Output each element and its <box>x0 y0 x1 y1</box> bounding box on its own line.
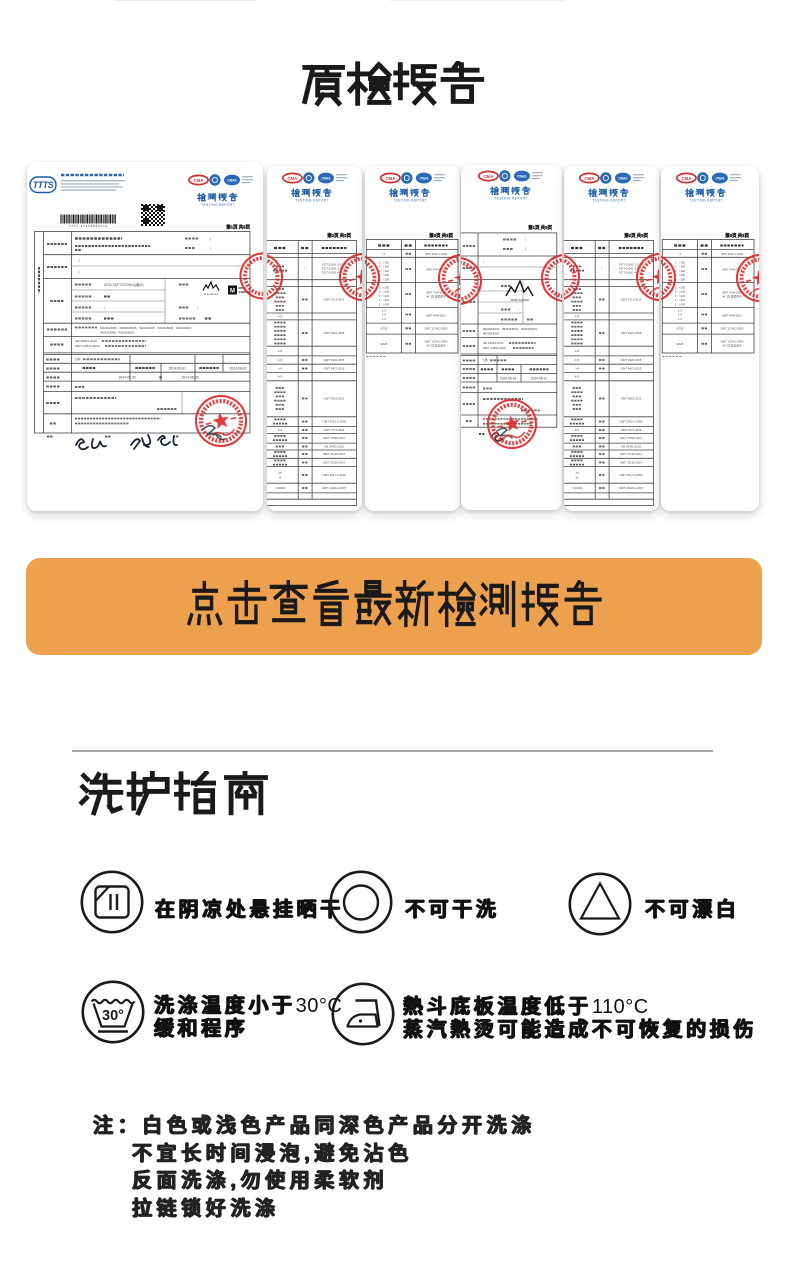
svg-text:GB/T 17592-2011: GB/T 17592-2011 <box>620 436 642 440</box>
svg-text:/: / <box>305 267 306 271</box>
svg-text:4K,3次,最高淋干: 4K,3次,最高淋干 <box>426 344 445 348</box>
svg-text:AY24-31(FT22C0001)(缠纱): AY24-31(FT22C0001)(缠纱) <box>104 282 144 287</box>
svg-text:/: / <box>525 248 526 252</box>
svg-text:6730: 6730 <box>677 327 684 331</box>
svg-text:30°: 30° <box>102 1008 124 1024</box>
svg-text:2：>100: 2：>100 <box>379 265 390 269</box>
svg-text:>10000: >10000 <box>572 486 583 490</box>
svg-text:1-5: 1-5 <box>678 309 682 313</box>
svg-text:GB/T 3922-2013: GB/T 3922-2013 <box>621 397 642 401</box>
svg-text:FZ/T 01001.4-2007: FZ/T 01001.4-2007 <box>322 271 346 275</box>
svg-text:GB/T 21196.2-2007: GB/T 21196.2-2007 <box>619 486 644 490</box>
svg-text:1件: 1件 <box>75 357 81 362</box>
svg-text:4-5: 4-5 <box>278 375 283 379</box>
svg-text:GB/T 31126-2014: GB/T 31126-2014 <box>323 461 345 465</box>
svg-text:GB/T 12794.2-2009: GB/T 12794.2-2009 <box>721 340 744 344</box>
svg-text:IM24618001、IM24018001、IM243180: IM24618001、IM24018001、IM24318001、 <box>483 327 540 331</box>
svg-text:3：>100: 3：>100 <box>675 269 686 273</box>
svg-text:GB/T 5713-2013: GB/T 5713-2013 <box>324 298 345 302</box>
svg-text:2024-05-21: 2024-05-21 <box>531 377 548 381</box>
svg-text:4-5: 4-5 <box>575 358 580 362</box>
svg-text:/: / <box>518 308 519 312</box>
svg-text:GB/T 3920-2008: GB/T 3920-2008 <box>621 358 642 362</box>
svg-text:3：>100: 3：>100 <box>379 269 390 273</box>
svg-text:GB/T 21196.2-2007: GB/T 21196.2-2007 <box>322 486 347 490</box>
svg-text:GB/T 3922-2013: GB/T 3922-2013 <box>324 397 345 401</box>
svg-text:MOBI GARDEN: MOBI GARDEN <box>511 298 530 302</box>
svg-text:GB/T 4802.1-2008: GB/T 4802.1-2008 <box>425 252 448 256</box>
svg-text:TESTING REPORT: TESTING REPORT <box>295 199 329 203</box>
svg-text:2：>100: 2：>100 <box>675 265 686 269</box>
svg-text:GB/T 4802.1-2008: GB/T 4802.1-2008 <box>721 252 744 256</box>
svg-text:11: 11 <box>575 475 578 479</box>
svg-text:/: / <box>525 238 526 242</box>
svg-text:TESTING REPORT: TESTING REPORT <box>689 199 723 203</box>
svg-text:第1页 共3页: 第1页 共3页 <box>226 224 250 231</box>
svg-text:CMA: CMA <box>681 176 692 181</box>
svg-text:第2页 共3页: 第2页 共3页 <box>327 232 351 239</box>
svg-text:CNAS: CNAS <box>419 177 428 181</box>
svg-text:4-5: 4-5 <box>278 358 283 362</box>
svg-text:2：>100: 2：>100 <box>675 290 686 294</box>
svg-text:4: 4 <box>383 252 385 256</box>
svg-text:FZ/T 01001.4-2007: FZ/T 01001.4-2007 <box>619 271 643 275</box>
svg-text:1：>100: 1：>100 <box>379 286 390 290</box>
svg-text:GB/T 22814-2022: GB/T 22814-2022 <box>75 344 100 348</box>
svg-text:7 7 7 6 - 9 7 2 6 4 9 6 3 1 1: 7 7 7 6 - 9 7 2 6 4 9 6 3 1 1 9 <box>69 224 108 228</box>
svg-text:4：>100: 4：>100 <box>675 298 686 302</box>
svg-text:GB/T 7573-2009: GB/T 7573-2009 <box>621 428 642 432</box>
svg-text:GB 18401-2010: GB 18401-2010 <box>621 445 641 449</box>
svg-text:IM24318002: IM24318002 <box>483 332 499 336</box>
svg-text:4K,3次,雾漬风干: 4K,3次,雾漬风干 <box>426 295 446 299</box>
svg-text:4：>100: 4：>100 <box>379 298 390 302</box>
svg-text:CMA: CMA <box>483 174 494 179</box>
svg-text:4-5: 4-5 <box>575 349 580 353</box>
svg-text:5：>100: 5：>100 <box>379 302 390 306</box>
svg-text:3：>100: 3：>100 <box>379 294 390 298</box>
svg-text:2024-05-30: 2024-05-30 <box>119 376 136 380</box>
svg-text:GB 18401-2010: GB 18401-2010 <box>483 341 504 345</box>
svg-text:/: / <box>483 260 484 264</box>
svg-text:2024-06-03: 2024-06-03 <box>182 376 199 380</box>
svg-text:CNAS: CNAS <box>517 175 526 179</box>
svg-text:/: / <box>602 267 603 271</box>
svg-text:GB/T 31126-2014: GB/T 31126-2014 <box>620 452 642 456</box>
svg-text:/: / <box>104 306 105 310</box>
svg-text:4：>100: 4：>100 <box>379 273 390 277</box>
svg-text:4K,3次,最高淋干: 4K,3次,最高淋干 <box>722 344 741 348</box>
svg-text:MOBI GARDEN: MOBI GARDEN <box>204 293 219 296</box>
svg-text:>4: >4 <box>575 367 579 371</box>
svg-text:GB 18401-2010: GB 18401-2010 <box>324 445 344 449</box>
svg-text:4-5: 4-5 <box>278 349 283 353</box>
svg-text:第1页 共3页: 第1页 共3页 <box>528 224 552 231</box>
svg-text:CMA: CMA <box>584 176 595 181</box>
svg-text:3：>100: 3：>100 <box>675 294 686 298</box>
svg-text:GB/T 2912.1-2009: GB/T 2912.1-2009 <box>323 420 346 424</box>
svg-text:2024-05-30: 2024-05-30 <box>169 367 186 371</box>
svg-text:GB/T 4745-2012: GB/T 4745-2012 <box>426 314 446 318</box>
svg-text:CNAS: CNAS <box>715 177 724 181</box>
svg-text:GB/T 3920-2008: GB/T 3920-2008 <box>324 358 345 362</box>
svg-text:GB 18401-2010: GB 18401-2010 <box>75 339 97 343</box>
svg-text:/: / <box>210 247 211 251</box>
svg-text:4-5: 4-5 <box>575 315 580 319</box>
svg-text:1件: 1件 <box>483 358 489 363</box>
svg-text:GB/T 31126-2014: GB/T 31126-2014 <box>323 452 345 456</box>
svg-text:GB/T 5713-2013: GB/T 5713-2013 <box>621 298 642 302</box>
svg-text:1：>100: 1：>100 <box>675 286 686 290</box>
svg-text:GB/T 4744-2013: GB/T 4744-2013 <box>722 291 742 295</box>
svg-text:0.2: 0.2 <box>575 428 580 432</box>
svg-text:4-5: 4-5 <box>575 375 580 379</box>
svg-text:第2页 共3页: 第2页 共3页 <box>624 232 648 239</box>
svg-text:第3页 共3页: 第3页 共3页 <box>429 232 453 239</box>
svg-text:>4: >4 <box>278 367 282 371</box>
svg-text:GB/T 7573-2009: GB/T 7573-2009 <box>324 428 345 432</box>
svg-text:11: 11 <box>278 475 281 479</box>
svg-text:GB/T 17592-2011: GB/T 17592-2011 <box>323 436 345 440</box>
svg-text:0.2: 0.2 <box>278 428 283 432</box>
svg-text:2：>100: 2：>100 <box>379 290 390 294</box>
svg-text:/: / <box>210 237 211 241</box>
svg-text:5：>100: 5：>100 <box>675 277 686 281</box>
svg-text:CNAS: CNAS <box>227 179 236 183</box>
svg-text:GB/T 3921-2008: GB/T 3921-2008 <box>324 331 345 335</box>
svg-text:第3页 共3页: 第3页 共3页 <box>725 232 749 239</box>
svg-text:1-5: 1-5 <box>678 317 682 321</box>
svg-text:5：>100: 5：>100 <box>379 277 390 281</box>
svg-text:GB/T 4745-2012: GB/T 4745-2012 <box>722 314 742 318</box>
svg-text:2-5: 2-5 <box>382 313 386 317</box>
svg-text:9026: 9026 <box>381 342 388 346</box>
svg-text:1-5: 1-5 <box>382 309 386 313</box>
svg-text:2-5: 2-5 <box>678 313 682 317</box>
svg-text:TTTS: TTTS <box>33 180 54 190</box>
svg-text:1：>100: 1：>100 <box>675 261 686 265</box>
svg-text:9026: 9026 <box>677 342 684 346</box>
svg-text:1：>100: 1：>100 <box>379 261 390 265</box>
svg-text:/: / <box>79 259 80 263</box>
svg-text:/: / <box>197 306 198 310</box>
svg-text:TESTING REPORT: TESTING REPORT <box>592 199 626 203</box>
svg-text:GB/T 8427-2019: GB/T 8427-2019 <box>324 367 345 371</box>
svg-text:CMA: CMA <box>194 178 205 183</box>
svg-text:IM24318008、IM24318010: IM24318008、IM24318010 <box>100 330 134 334</box>
svg-text:TESTING REPORT: TESTING REPORT <box>201 203 235 207</box>
svg-text:NM24618005、NM24618006、IM243180: NM24618005、NM24618006、IM24318005、IM24318… <box>100 326 194 330</box>
svg-text:/: / <box>79 270 80 274</box>
svg-text:GB/T 12794.2-2009: GB/T 12794.2-2009 <box>425 340 448 344</box>
svg-text:TESTING REPORT: TESTING REPORT <box>494 197 528 201</box>
svg-text:GB/T 22814-2022: GB/T 22814-2022 <box>483 346 506 350</box>
svg-text:4：>100: 4：>100 <box>675 273 686 277</box>
svg-text:M: M <box>230 289 235 295</box>
svg-text:>10000: >10000 <box>275 486 286 490</box>
svg-text:5：>100: 5：>100 <box>675 302 686 306</box>
svg-text:4K,3次,雾漬风干: 4K,3次,雾漬风干 <box>722 295 742 299</box>
svg-text:TESTING REPORT: TESTING REPORT <box>393 199 427 203</box>
svg-text:GB/T 12794.2-2009: GB/T 12794.2-2009 <box>721 327 744 331</box>
svg-text:CMA: CMA <box>287 176 298 181</box>
svg-text:GB/T 31126-2014: GB/T 31126-2014 <box>620 461 642 465</box>
svg-text:CNAS: CNAS <box>618 177 627 181</box>
svg-text:CNAS: CNAS <box>321 177 330 181</box>
svg-text:GB/T 3921-2008: GB/T 3921-2008 <box>621 331 642 335</box>
svg-text:GB/T 2912.1-2009: GB/T 2912.1-2009 <box>620 420 643 424</box>
svg-text:CMA: CMA <box>385 176 396 181</box>
svg-text:GB/T 3917.2-2009: GB/T 3917.2-2009 <box>620 473 643 477</box>
svg-text:GB/T 12794.2-2009: GB/T 12794.2-2009 <box>425 327 448 331</box>
svg-text:1-5: 1-5 <box>382 317 386 321</box>
svg-text:GB/T 8427-2019: GB/T 8427-2019 <box>621 367 642 371</box>
svg-text:6730: 6730 <box>381 327 388 331</box>
svg-text:4-5: 4-5 <box>278 315 283 319</box>
svg-text:GB/T 3917.2-2009: GB/T 3917.2-2009 <box>323 473 346 477</box>
svg-text:2024-05-16: 2024-05-16 <box>500 377 517 381</box>
svg-text:2024-06-03: 2024-06-03 <box>230 367 247 371</box>
svg-text:4: 4 <box>679 252 681 256</box>
